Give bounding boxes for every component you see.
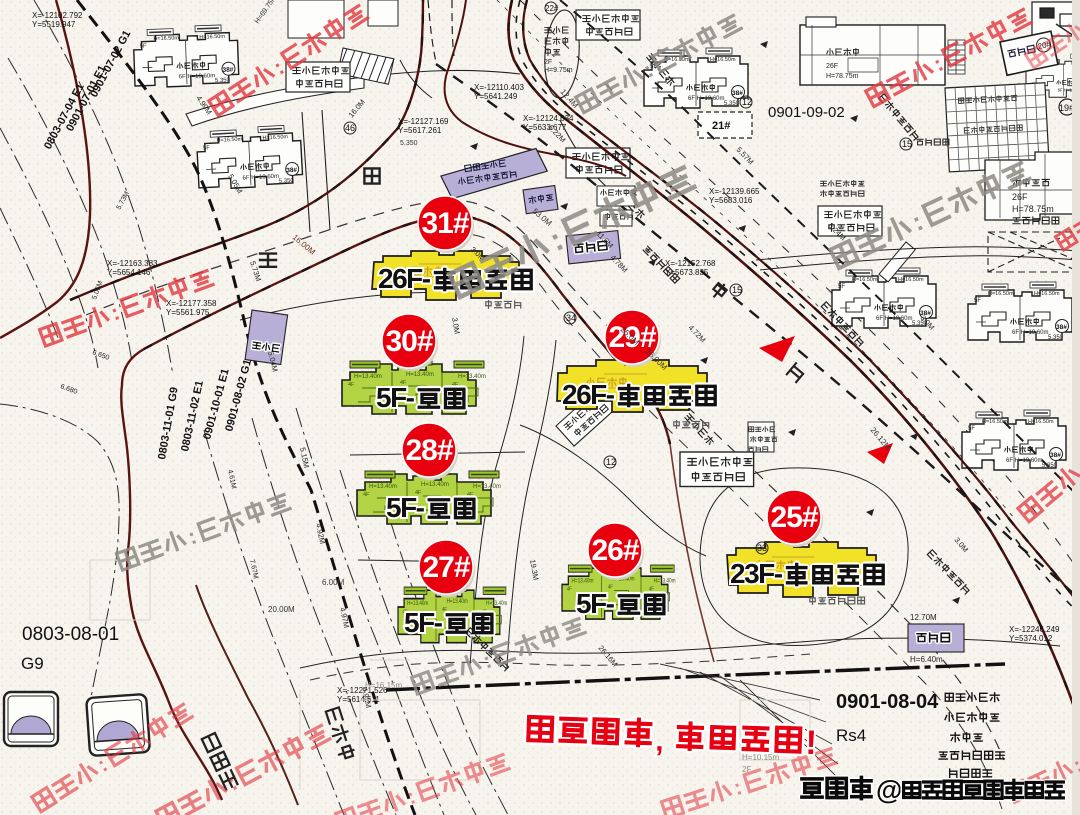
svg-text:26#: 26#: [591, 534, 639, 567]
svg-text:20.00M: 20.00M: [268, 605, 295, 614]
svg-text:34: 34: [566, 313, 576, 323]
svg-text:33: 33: [757, 543, 767, 553]
svg-text:5F-: 5F-: [576, 588, 615, 619]
svg-text:12: 12: [606, 457, 616, 467]
svg-text:,: ,: [655, 724, 664, 757]
svg-text:Y=5617.261: Y=5617.261: [398, 126, 442, 135]
svg-text:X=-12163.383: X=-12163.383: [107, 259, 158, 268]
svg-text:X=-12102.792: X=-12102.792: [32, 11, 83, 20]
svg-text:0901-08-04: 0901-08-04: [836, 691, 939, 713]
svg-text:46: 46: [345, 123, 355, 133]
svg-text:31#: 31#: [421, 207, 469, 240]
svg-text:Y=5683.016: Y=5683.016: [709, 196, 753, 205]
svg-text:28#: 28#: [405, 434, 453, 467]
svg-text:5F-: 5F-: [404, 607, 443, 638]
svg-text:H=78.75m: H=78.75m: [826, 73, 859, 80]
svg-text:H=78.75m: H=78.75m: [1012, 204, 1054, 214]
svg-text:12.70M: 12.70M: [910, 613, 937, 622]
svg-text:Y=5654.146: Y=5654.146: [107, 268, 151, 277]
svg-text:X=-12177.358: X=-12177.358: [166, 299, 217, 308]
svg-text:Y=5374.012: Y=5374.012: [1009, 634, 1053, 643]
svg-text:5.350: 5.350: [400, 140, 418, 147]
svg-text:X=-12110.403: X=-12110.403: [474, 83, 524, 92]
svg-text:X=-12127.169: X=-12127.169: [398, 117, 449, 126]
svg-text:26F-: 26F-: [378, 263, 431, 294]
svg-text:Rs4: Rs4: [836, 726, 866, 745]
svg-text:Y=5641.249: Y=5641.249: [474, 92, 518, 101]
svg-text:5F-: 5F-: [386, 492, 425, 523]
svg-text:23F-: 23F-: [730, 558, 783, 589]
svg-text:26F-: 26F-: [562, 379, 615, 410]
svg-text:X=-12246.249: X=-12246.249: [1009, 625, 1060, 634]
svg-text:G9: G9: [21, 654, 44, 673]
svg-text:0803-08-01: 0803-08-01: [22, 624, 119, 645]
svg-text:26F: 26F: [826, 63, 838, 70]
svg-text:21#: 21#: [712, 120, 730, 132]
svg-text:25#: 25#: [770, 501, 818, 534]
svg-text:0901-09-02: 0901-09-02: [768, 104, 845, 121]
svg-text:19#: 19#: [1059, 103, 1074, 113]
svg-text:X=-12152.768: X=-12152.768: [665, 259, 716, 268]
svg-text:15: 15: [732, 285, 742, 295]
svg-text:@: @: [876, 775, 902, 805]
svg-text:X=-12139.665: X=-12139.665: [709, 187, 760, 196]
svg-text:6.00M: 6.00M: [322, 578, 345, 587]
svg-text:5F-: 5F-: [376, 382, 415, 413]
svg-text:30#: 30#: [385, 325, 433, 358]
svg-text:H=6.40m: H=6.40m: [910, 655, 943, 664]
svg-text:X=-12124.634: X=-12124.634: [523, 114, 574, 123]
svg-text:Y=5519.947: Y=5519.947: [32, 20, 76, 29]
svg-text:H=9.75m: H=9.75m: [544, 67, 573, 74]
svg-text:!: !: [805, 724, 818, 762]
svg-text:12: 12: [742, 97, 752, 107]
svg-text:H=16.15m: H=16.15m: [365, 681, 402, 690]
svg-text:26F: 26F: [1012, 192, 1028, 202]
svg-text:27#: 27#: [422, 551, 470, 584]
svg-text:Y=5561.975: Y=5561.975: [166, 308, 210, 317]
svg-text:22#: 22#: [545, 4, 559, 13]
svg-text:15: 15: [902, 139, 912, 149]
